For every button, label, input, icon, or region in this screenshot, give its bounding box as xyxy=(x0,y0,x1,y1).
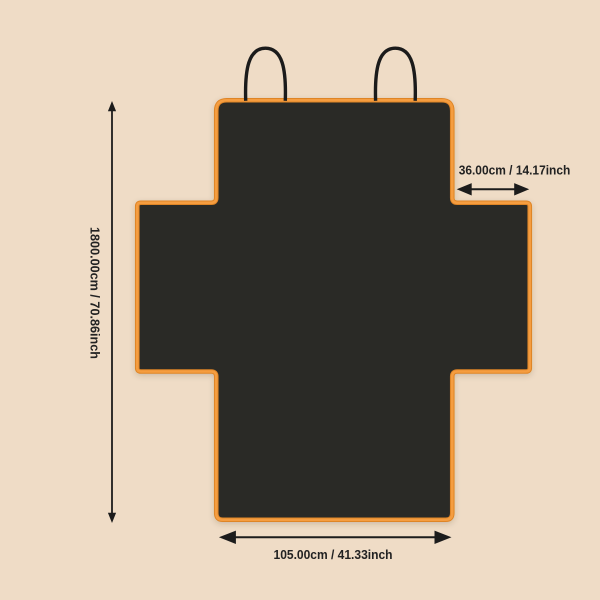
svg-text:105.00cm / 41.33inch: 105.00cm / 41.33inch xyxy=(274,547,393,562)
svg-text:1800.00cm / 70.86inch: 1800.00cm / 70.86inch xyxy=(88,227,103,359)
svg-text:36.00cm / 14.17inch: 36.00cm / 14.17inch xyxy=(459,163,571,178)
